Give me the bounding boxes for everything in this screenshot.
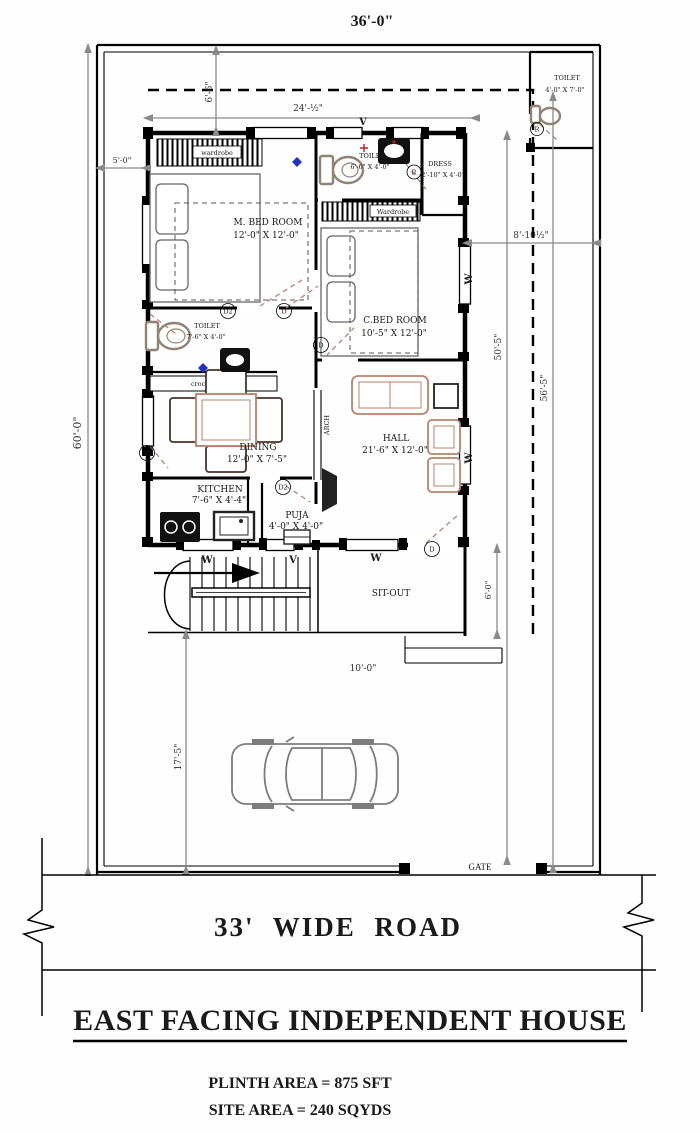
title-block: EAST FACING INDEPENDENT HOUSE PLINTH ARE… — [73, 1004, 627, 1119]
plinth-area-text: PLINTH AREA = 875 SFT — [208, 1075, 392, 1092]
tag-ar: AR — [141, 450, 153, 458]
corner-table — [434, 384, 458, 408]
tag-vent-1: V — [288, 555, 297, 566]
dim-site-depth: 60'-0" — [71, 417, 84, 450]
tv-unit — [322, 468, 337, 512]
room-size-cbed: 10'-5" X 12'-0" — [361, 329, 427, 339]
tag-d2-1: D2 — [223, 308, 232, 316]
wardrobe-cbed: Wardrobe — [322, 202, 420, 221]
tag-rotary-outdoor: R — [535, 126, 541, 134]
puja-shelf — [284, 530, 310, 544]
gate-post-left — [399, 863, 410, 874]
dim-sitout-width: 10'-0" — [350, 664, 377, 674]
dim-top-overall: 36'-0" — [351, 13, 394, 30]
wardrobe-mbed-label: wardrobe — [201, 149, 233, 157]
tag-d2-2: D2 — [278, 484, 287, 492]
staircase — [148, 545, 465, 633]
dim-sitout-depth: 6'-0" — [484, 581, 493, 600]
room-size-dress: 2'-10" X 4'-0" — [421, 171, 464, 179]
room-label-toilet-attached: TOILET — [359, 152, 385, 160]
tap-red-mark — [360, 144, 368, 152]
tag-rotary-dress: R — [412, 169, 418, 177]
tag-d-1: D — [281, 308, 286, 316]
room-size-toilet-common: 7'-6" X 4'-0" — [186, 333, 225, 341]
dim-side-offset: 8'-10½" — [513, 230, 549, 241]
road-break-left — [24, 838, 54, 1016]
car — [232, 737, 398, 811]
dim-depth-a: 50'-5" — [494, 334, 504, 361]
road-break-right — [624, 875, 654, 1012]
drawing-title: EAST FACING INDEPENDENT HOUSE — [73, 1004, 627, 1037]
dim-left-setback: 5'-0" — [113, 156, 132, 165]
room-size-puja: 4'-0" X 4'-0" — [269, 522, 323, 532]
room-label-toilet-outdoor: TOILET — [554, 74, 580, 82]
room-label-toilet-common: TOILET — [194, 322, 220, 330]
room-label-mbed: M. BED ROOM — [234, 218, 303, 228]
wardrobe-mbed: wardrobe — [157, 139, 262, 166]
room-label-cbed: C.BED ROOM — [363, 316, 426, 326]
road-label: 33' WIDE ROAD — [214, 912, 462, 942]
room-size-kitchen: 7'-6" X 4'-4" — [192, 496, 246, 506]
room-label-hall: HALL — [383, 434, 409, 444]
wardrobe-cbed-label: Wardrobe — [377, 208, 409, 216]
tag-window-1: W — [200, 555, 213, 566]
room-label-kitchen: KITCHEN — [197, 485, 243, 495]
dim-front-setback: 17'-5" — [174, 744, 184, 771]
floor-drain-1 — [292, 157, 302, 167]
gate-label: GATE — [469, 862, 492, 872]
up-arrow-head — [232, 563, 260, 583]
road: GATE 33' WIDE ROAD — [24, 838, 656, 1016]
room-size-dining: 12'-0" X 7'-5" — [227, 455, 287, 465]
room-label-sitout: SIT-OUT — [372, 589, 411, 599]
arch-label: ARCH — [323, 415, 331, 437]
room-size-mbed: 12'-0" X 12'-0" — [233, 231, 299, 241]
tag-vent-2: V — [358, 117, 367, 128]
dim-depth-b: 56'-5" — [540, 375, 550, 402]
room-label-puja: PUJA — [285, 511, 309, 521]
room-size-toilet-outdoor: 4'-0" X 7'-0" — [545, 86, 584, 94]
stove — [160, 512, 200, 542]
dim-inner-width: 24'-½" — [293, 103, 323, 114]
room-size-toilet-attached: 6'-6" X 4'-0" — [350, 163, 389, 171]
sitout-area — [405, 545, 502, 663]
outdoor-toilet: R TOILET 4'-0" X 7'-0" — [526, 52, 593, 152]
gate-post-right — [536, 863, 547, 874]
dim-top-setback: 6'-6" — [205, 81, 215, 102]
sofa-set — [322, 376, 460, 512]
kitchen-fixtures — [160, 512, 254, 542]
tag-window-3: W — [464, 273, 475, 286]
tag-d-2: D — [318, 342, 323, 350]
room-label-dress: DRESS — [428, 160, 452, 168]
tag-d-3: D — [429, 546, 434, 554]
floor-plan-canvas: R TOILET 4'-0" X 7'-0" — [0, 0, 700, 1134]
tag-window-4: W — [464, 452, 475, 465]
room-label-dining: DINING — [239, 443, 276, 453]
tag-window-2: W — [369, 553, 382, 564]
room-size-hall: 21'-6" X 12'-0" — [362, 446, 428, 456]
site-area-text: SITE AREA = 240 SQYDS — [209, 1102, 392, 1119]
